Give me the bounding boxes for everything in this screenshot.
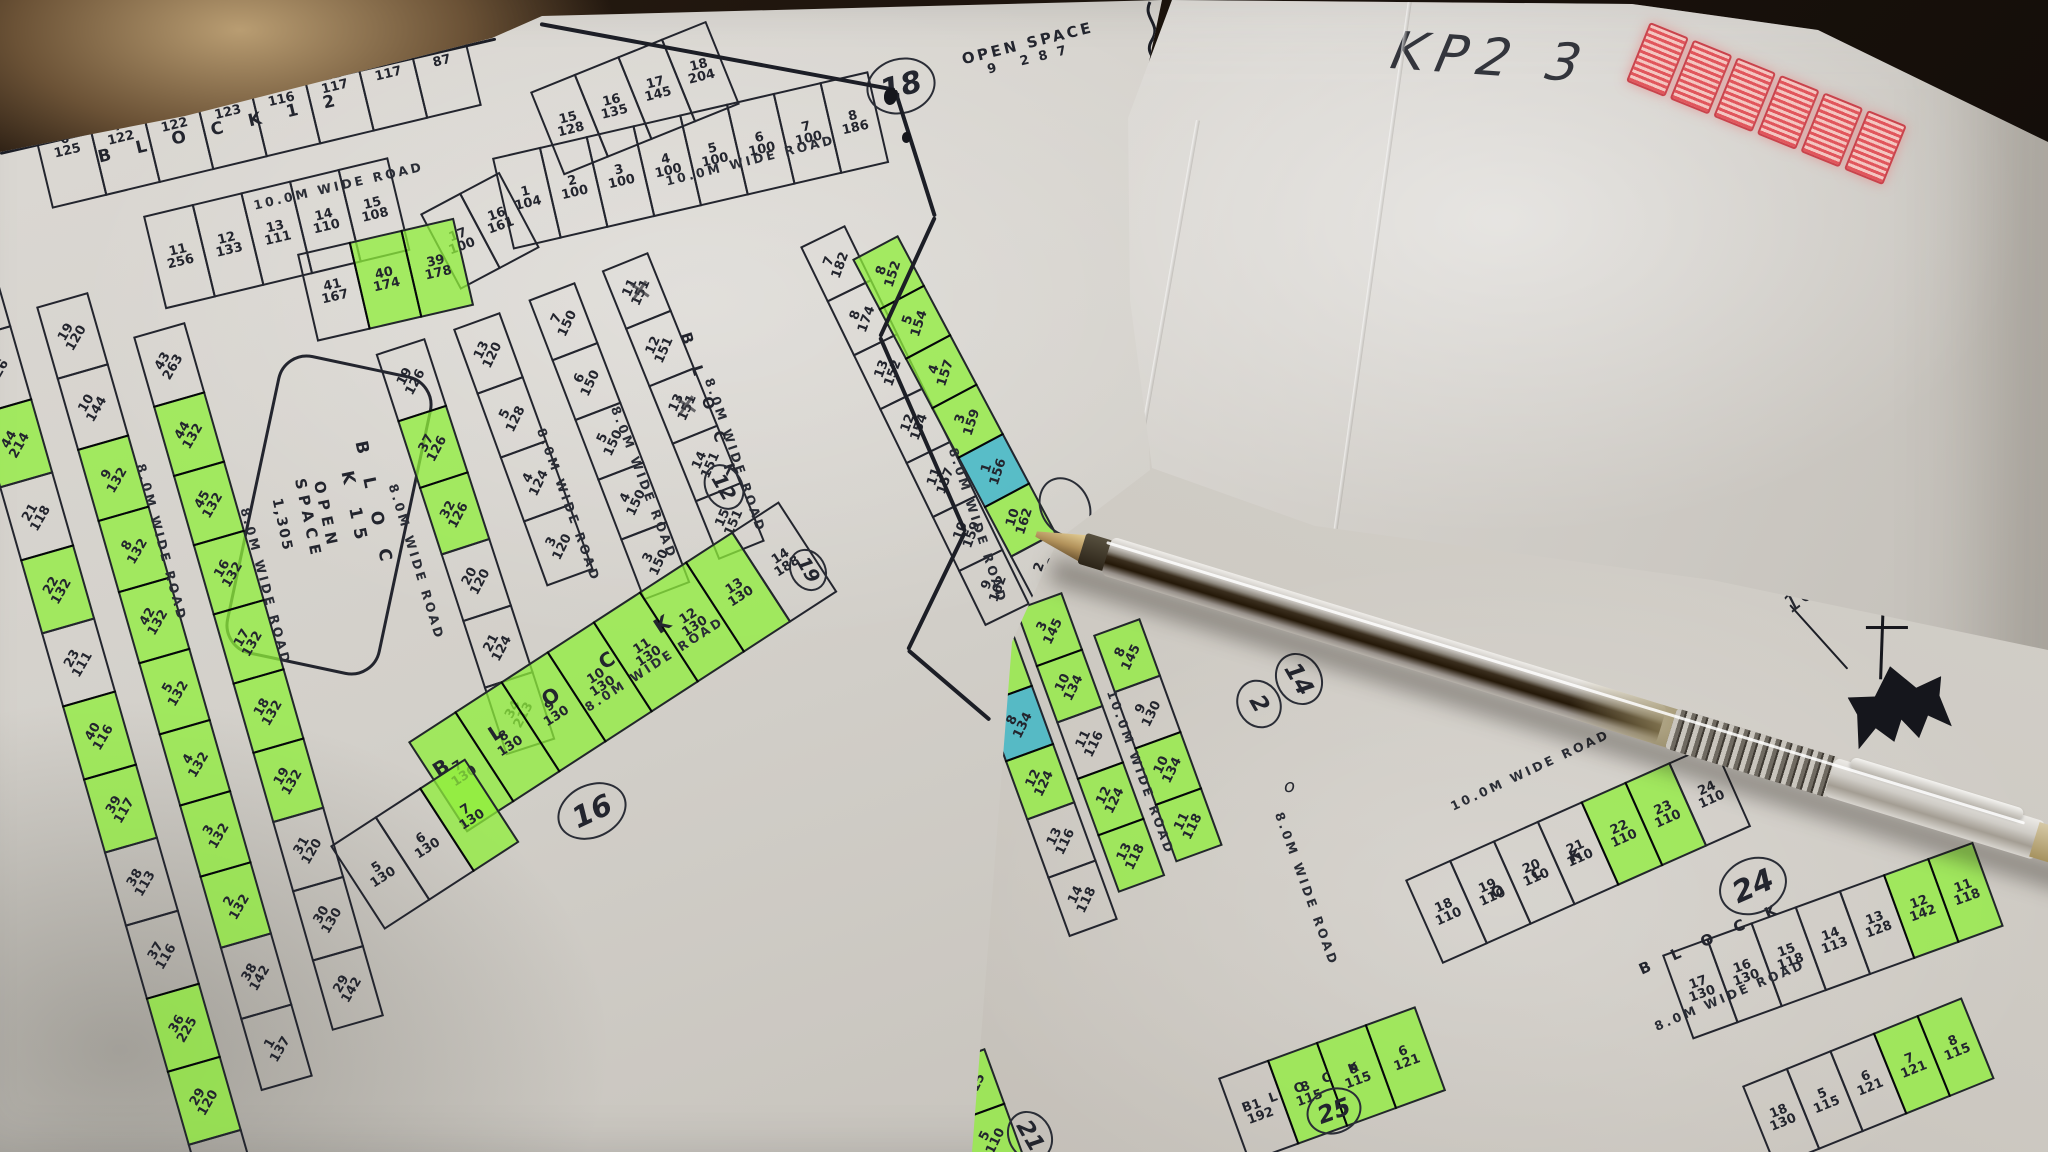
plot-number: 1104 xyxy=(511,183,543,213)
plot-number: 4157 xyxy=(925,355,957,388)
plot-cell: 29142 xyxy=(312,945,384,1031)
plot-number: 2132 xyxy=(218,887,253,923)
open-space-top: OPEN SPACE 9 287 xyxy=(960,18,1099,83)
plot-number: 18204 xyxy=(684,56,716,87)
plot-number: 30130 xyxy=(311,901,346,937)
plot-number: 13111 xyxy=(261,218,293,248)
plot-number: 23110 xyxy=(1648,797,1683,831)
plot-number: 10162 xyxy=(1004,503,1036,536)
handwritten-annotation: o xyxy=(1284,776,1295,797)
plot-number: 29142 xyxy=(330,970,365,1006)
plot-number: 40116 xyxy=(82,718,117,754)
plot-number: 43263 xyxy=(152,347,187,383)
plot-number: 187 xyxy=(429,42,452,70)
plot-number: 44132 xyxy=(172,416,207,452)
handwritten-note: KP2 3 xyxy=(1386,21,1596,94)
plot-number: 12151 xyxy=(643,331,677,366)
plot-number: 38113 xyxy=(124,864,159,900)
plot-number: 3100 xyxy=(604,161,636,191)
plot-number: 13116 xyxy=(1044,822,1078,857)
plot-number: 5130 xyxy=(362,855,398,890)
plot-number: 41167 xyxy=(318,277,350,307)
plot-number: 29120 xyxy=(187,1083,222,1119)
plot-number: 5115 xyxy=(1808,1083,1842,1116)
plot-number: 39178 xyxy=(421,253,453,283)
plot-number: 3132 xyxy=(198,816,233,852)
plot-number: 10144 xyxy=(75,389,110,425)
plot-number: 5110 xyxy=(975,1122,1009,1152)
plot-number: 7121 xyxy=(1895,1048,1929,1081)
plot-number: 4132 xyxy=(177,745,212,781)
plot-number: 13118 xyxy=(1114,838,1148,873)
plot-number: 6121 xyxy=(1851,1066,1885,1099)
plot-number: 11116 xyxy=(1073,725,1107,760)
plot-number: 6150 xyxy=(569,364,603,399)
plot-number: 6130 xyxy=(407,826,443,861)
plot-number: 3159 xyxy=(952,404,984,437)
plot-number: 18110 xyxy=(1429,895,1464,929)
plot-number: 10134 xyxy=(1151,751,1185,786)
plot-number: 22110 xyxy=(1605,817,1640,851)
plot-number: 14110 xyxy=(309,206,341,236)
circled-block-number: 16 xyxy=(548,771,636,850)
plot-number: 13130 xyxy=(720,574,756,609)
plot-number: 5132 xyxy=(157,674,192,710)
plot-number: 12124 xyxy=(1094,781,1128,816)
plot-number: 21124 xyxy=(481,629,516,665)
plot-number: 20120 xyxy=(459,562,494,598)
plot-number: 38142 xyxy=(239,958,274,994)
plot-number: 12124 xyxy=(1023,764,1057,799)
paper-crease xyxy=(1333,0,1412,535)
map-boundary-line xyxy=(906,531,967,651)
plot-number: 23111 xyxy=(61,645,96,681)
plot-number: 7182 xyxy=(820,247,852,281)
plot-number: 7150 xyxy=(547,304,581,339)
plot-number: 18130 xyxy=(1764,1101,1798,1134)
plot-number: 17145 xyxy=(641,74,673,105)
plot-number: 17126 xyxy=(0,352,12,388)
plot-number: 14118 xyxy=(1065,881,1099,916)
plot-number: 16132 xyxy=(211,555,246,591)
plot-number: 40174 xyxy=(370,265,402,295)
plot-number: 42132 xyxy=(137,603,172,639)
plot-number: 9132 xyxy=(96,460,131,496)
plot-number: 1156 xyxy=(978,454,1010,487)
plot-number: 8152 xyxy=(873,256,905,289)
plot-number: 44214 xyxy=(0,425,33,461)
plot-number: 8145 xyxy=(1110,638,1144,673)
plot-number: 45132 xyxy=(191,485,226,521)
plot-number: 3145 xyxy=(1032,612,1066,647)
plot-number: 19132 xyxy=(271,762,306,798)
plot-number: 32126 xyxy=(437,496,472,532)
plot-number: 39117 xyxy=(103,791,138,827)
plot-number: 37126 xyxy=(416,429,451,465)
compass-rose xyxy=(1843,656,1953,752)
plot-number: 21118 xyxy=(19,498,54,534)
plot-number: 8132 xyxy=(116,531,151,567)
road-label: 8.0M WIDE ROAD xyxy=(1272,810,1342,968)
plot-number: 8186 xyxy=(838,108,870,138)
plot-number: 8134 xyxy=(1002,706,1036,741)
plot-number: 18132 xyxy=(251,693,286,729)
plot-number: 15128 xyxy=(553,109,585,140)
plot-strip: 1613817126442142111822132231114011639117… xyxy=(0,252,263,1152)
plot-number: 15108 xyxy=(358,195,390,225)
plot-number: 10134 xyxy=(1053,668,1087,703)
plot-number: 12117 xyxy=(371,54,403,84)
plot-number: 9130 xyxy=(1131,694,1165,729)
plot-number: 5128 xyxy=(495,400,529,435)
revenue-stamps xyxy=(1624,22,1928,199)
plot-number: 13120 xyxy=(471,336,505,371)
plot-number: 11118 xyxy=(1948,876,1982,908)
pencil-x-mark: ✕ xyxy=(619,275,658,306)
plot-number: 12142 xyxy=(1904,892,1938,924)
plot-number: 6121 xyxy=(1388,1041,1422,1073)
plot-number: 11118 xyxy=(1172,807,1206,842)
plot-number: 1137 xyxy=(259,1029,294,1065)
plot-number: 19120 xyxy=(55,318,90,354)
plot-number: 17132 xyxy=(231,624,266,660)
photo-of-plat-maps: 1514511133813412124131161411831451013411… xyxy=(0,0,2048,1152)
plot-number: 36225 xyxy=(166,1010,201,1046)
plot-strip: 181305115612171218115 xyxy=(1742,997,1995,1152)
plot-number: 16135 xyxy=(597,92,629,123)
plot-cell: 1137 xyxy=(240,1003,313,1091)
plot-number: 2100 xyxy=(558,172,590,202)
plot-number: 5154 xyxy=(899,306,931,339)
plot-number: 37116 xyxy=(145,937,180,973)
plot-number: 19126 xyxy=(394,362,429,398)
plot-number: 12133 xyxy=(212,230,244,260)
plot-number: 8115 xyxy=(1938,1031,1972,1064)
plot-number: 13128 xyxy=(1860,908,1894,940)
compass-crossbar xyxy=(1866,626,1908,629)
plot-strip: 6125712281229123101161111712117187 xyxy=(25,0,482,209)
plot-number: 31120 xyxy=(291,832,326,868)
plot-number: 7130 xyxy=(451,797,487,832)
plot-number: 22132 xyxy=(40,571,75,607)
plot-number: 8174 xyxy=(846,301,878,335)
plot-number: 6125 xyxy=(50,131,82,161)
map-boundary-line xyxy=(907,648,992,721)
plot-number: 11256 xyxy=(163,241,195,271)
plot-number: 14113 xyxy=(1816,924,1850,956)
